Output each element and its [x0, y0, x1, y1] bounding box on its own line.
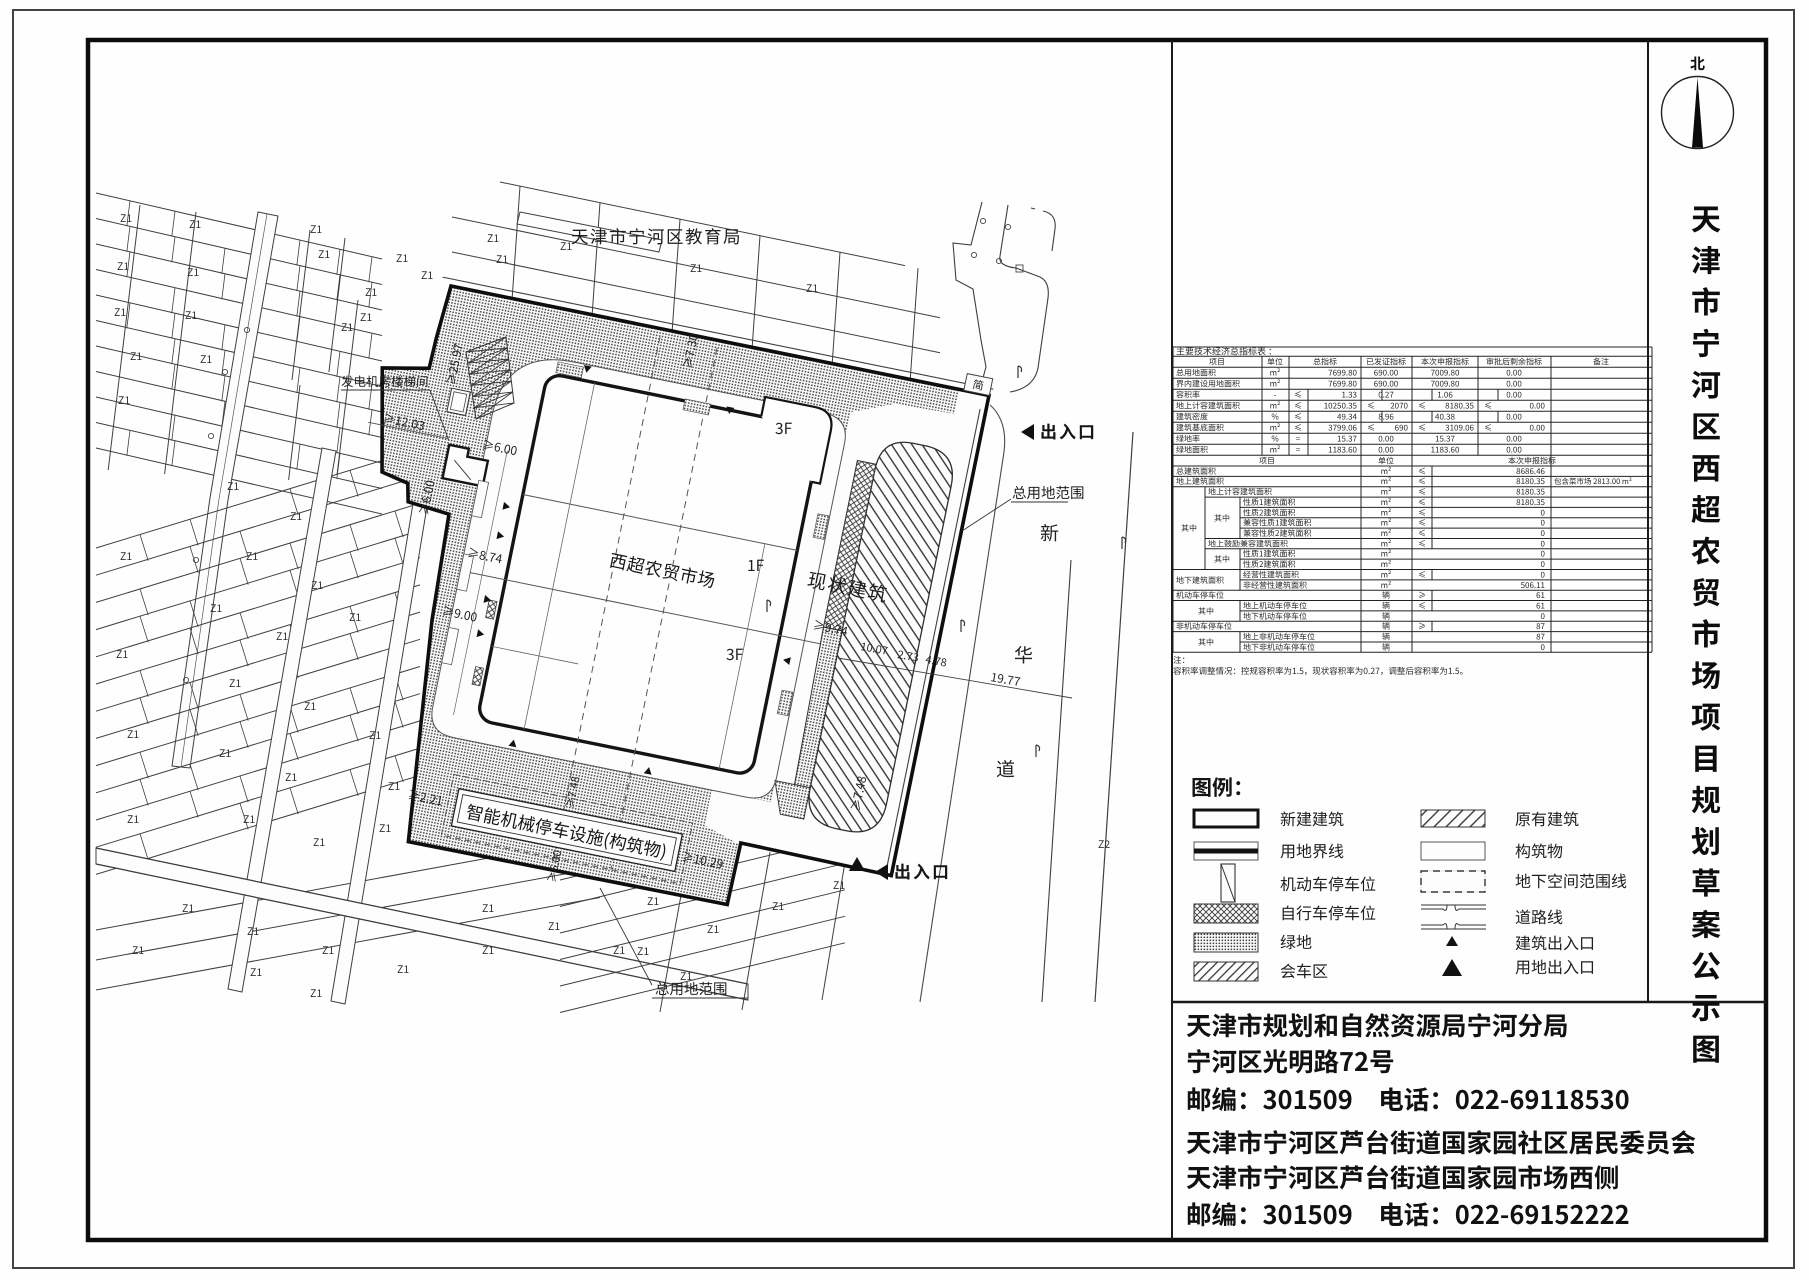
svg-text:用地出入口: 用地出入口: [1515, 954, 1595, 978]
svg-text:其中: 其中: [1214, 554, 1230, 565]
svg-text:0.00: 0.00: [1529, 423, 1545, 434]
svg-text:绿地: 绿地: [1280, 929, 1312, 953]
svg-text:界内建设用地面积: 界内建设用地面积: [1176, 379, 1240, 390]
svg-text:Z1: Z1: [560, 239, 572, 254]
svg-text:Z1: Z1: [349, 610, 361, 625]
svg-text:-: -: [1274, 390, 1277, 401]
svg-text:≤: ≤: [1484, 423, 1492, 434]
svg-text:≤: ≤: [1294, 423, 1302, 434]
svg-text:1.06: 1.06: [1437, 390, 1453, 401]
svg-text:Z1: Z1: [341, 320, 353, 335]
svg-text:1183.60: 1183.60: [1328, 445, 1357, 456]
svg-text:7699.80: 7699.80: [1328, 368, 1357, 379]
svg-text:Z1: Z1: [127, 812, 139, 827]
svg-text:3F: 3F: [726, 643, 744, 665]
svg-text:出入口: 出入口: [894, 858, 951, 883]
svg-text:建筑密度: 建筑密度: [1176, 412, 1208, 423]
svg-text:邮编：301509 电话：022-69152222: 邮编：301509 电话：022-69152222: [1186, 1195, 1630, 1232]
svg-text:0: 0: [1541, 569, 1546, 580]
svg-text:Z1: Z1: [322, 943, 334, 958]
svg-text:Z1: Z1: [310, 222, 322, 237]
svg-text:Z1: Z1: [187, 265, 199, 280]
svg-text:Z1: Z1: [285, 770, 297, 785]
svg-text:≤: ≤: [1418, 497, 1426, 508]
svg-text:辆: 辆: [1382, 600, 1390, 611]
svg-text:地下机动车停车位: 地下机动车停车位: [1243, 611, 1307, 622]
svg-text:m²: m²: [1381, 559, 1392, 570]
svg-text:图: 图: [1691, 1025, 1721, 1069]
svg-text:Z1: Z1: [772, 899, 784, 914]
svg-text:690: 690: [1395, 423, 1409, 434]
svg-text:天津市宁河区芦台街道国家园社区居民委员会: 天津市宁河区芦台街道国家园社区居民委员会: [1186, 1123, 1696, 1160]
svg-text:示: 示: [1691, 984, 1721, 1028]
svg-text:地上机动车停车位: 地上机动车停车位: [1243, 600, 1307, 611]
svg-text:市: 市: [1691, 278, 1721, 322]
svg-text:单位: 单位: [1267, 357, 1283, 368]
svg-text:m²: m²: [1270, 368, 1281, 379]
svg-text:Z1: Z1: [120, 549, 132, 564]
svg-text:地下建筑面积: 地下建筑面积: [1176, 575, 1224, 586]
svg-text:Z1: Z1: [365, 285, 377, 300]
svg-text:0.00: 0.00: [1506, 390, 1522, 401]
svg-text:0: 0: [1541, 642, 1546, 653]
svg-text:其中: 其中: [1214, 513, 1230, 524]
svg-text:Z1: Z1: [290, 509, 302, 524]
svg-text:机动车停车位: 机动车停车位: [1176, 590, 1224, 601]
svg-text:总用地范围: 总用地范围: [1012, 482, 1085, 503]
svg-text:超: 超: [1691, 486, 1721, 530]
svg-text:%: %: [1271, 434, 1279, 445]
svg-text:0.00: 0.00: [1506, 368, 1522, 379]
svg-text:1F: 1F: [747, 554, 765, 576]
svg-text:区: 区: [1691, 403, 1721, 447]
svg-text:Z1: Z1: [379, 821, 391, 836]
svg-text:原有建筑: 原有建筑: [1515, 806, 1579, 830]
svg-text:农: 农: [1691, 527, 1721, 571]
svg-text:Z1: Z1: [276, 629, 288, 644]
svg-text:天津市宁河区芦台街道国家园市场西侧: 天津市宁河区芦台街道国家园市场西侧: [1186, 1158, 1620, 1195]
svg-text:Z1: Z1: [247, 924, 259, 939]
svg-text:包含菜市场 2813.00 m²: 包含菜市场 2813.00 m²: [1554, 476, 1632, 487]
svg-text:天: 天: [1691, 195, 1721, 239]
svg-text:会车区: 会车区: [1280, 958, 1328, 982]
svg-text:1183.60: 1183.60: [1431, 445, 1460, 456]
svg-text:=: =: [1296, 445, 1301, 456]
svg-text:1.33: 1.33: [1341, 390, 1357, 401]
svg-text:性质1建筑面积: 性质1建筑面积: [1243, 497, 1295, 508]
svg-text:宁河区光明路72号: 宁河区光明路72号: [1186, 1042, 1395, 1079]
svg-text:690.00: 690.00: [1374, 379, 1399, 390]
svg-text:8180.35: 8180.35: [1516, 497, 1545, 508]
svg-text:其中: 其中: [1198, 637, 1214, 648]
svg-text:≤: ≤: [1484, 401, 1492, 412]
svg-text:40.38: 40.38: [1435, 412, 1456, 423]
svg-text:Z1: Z1: [117, 259, 129, 274]
svg-text:%: %: [1271, 412, 1279, 423]
svg-text:Z1: Z1: [397, 962, 409, 977]
svg-text:≤: ≤: [1418, 476, 1426, 487]
svg-text:87: 87: [1536, 632, 1545, 643]
svg-text:主要技术经济总指标表 ：: 主要技术经济总指标表 ：: [1176, 344, 1277, 357]
svg-text:≤: ≤: [1367, 423, 1375, 434]
svg-text:0: 0: [1541, 518, 1546, 529]
svg-text:Z1: Z1: [118, 393, 130, 408]
svg-text:天津市规划和自然资源局宁河分局: 天津市规划和自然资源局宁河分局: [1186, 1006, 1569, 1043]
svg-text:Z1: Z1: [388, 779, 400, 794]
svg-text:已发证指标: 已发证指标: [1366, 357, 1406, 368]
svg-text:0.00: 0.00: [1506, 434, 1522, 445]
svg-text:其中: 其中: [1198, 606, 1214, 617]
svg-text:Z1: Z1: [114, 305, 126, 320]
svg-text:地上计容建筑面积: 地上计容建筑面积: [1176, 401, 1240, 412]
svg-text:0.00: 0.00: [1506, 412, 1522, 423]
svg-text:Z1: Z1: [200, 352, 212, 367]
svg-text:Z1: Z1: [116, 647, 128, 662]
svg-text:≤: ≤: [1294, 412, 1302, 423]
svg-text:贸: 贸: [1691, 569, 1721, 613]
svg-text:0.00: 0.00: [1378, 445, 1394, 456]
svg-text:经营性建筑面积: 经营性建筑面积: [1243, 569, 1299, 580]
svg-text:Z1: Z1: [189, 217, 201, 232]
svg-text:建筑基底面积: 建筑基底面积: [1176, 423, 1224, 434]
svg-text:Z1: Z1: [219, 746, 231, 761]
svg-text:目: 目: [1691, 735, 1721, 779]
svg-text:地下非机动车停车位: 地下非机动车停车位: [1243, 642, 1315, 653]
svg-text:10250.35: 10250.35: [1324, 401, 1358, 412]
svg-text:辆: 辆: [1382, 632, 1390, 643]
svg-text:Z1: Z1: [250, 965, 262, 980]
svg-text:市: 市: [1691, 610, 1721, 654]
svg-text:总用地面积: 总用地面积: [1176, 368, 1216, 379]
svg-text:宁: 宁: [1691, 320, 1721, 364]
svg-text:61: 61: [1536, 600, 1545, 611]
svg-text:8180.35: 8180.35: [1516, 476, 1545, 487]
svg-text:Z1: Z1: [369, 728, 381, 743]
svg-text:≤: ≤: [1418, 423, 1426, 434]
svg-text:非机动车停车位: 非机动车停车位: [1176, 621, 1232, 632]
svg-text:m²: m²: [1381, 569, 1392, 580]
svg-text:河: 河: [1691, 361, 1721, 405]
svg-text:Z1: Z1: [487, 231, 499, 246]
svg-text:新建建筑: 新建建筑: [1280, 806, 1344, 830]
svg-text:草: 草: [1691, 859, 1721, 903]
svg-text:=: =: [1296, 434, 1301, 445]
svg-text:m²: m²: [1270, 423, 1281, 434]
svg-text:Z1: Z1: [120, 211, 132, 226]
svg-text:≤: ≤: [1294, 390, 1302, 401]
svg-text:绿地面积: 绿地面积: [1176, 445, 1208, 456]
svg-text:本次申报指标: 本次申报指标: [1508, 455, 1556, 466]
svg-text:兼容性质1建筑面积: 兼容性质1建筑面积: [1243, 518, 1311, 529]
svg-text:图例：: 图例：: [1191, 772, 1254, 802]
svg-text:Z1: Z1: [482, 943, 494, 958]
svg-text:Z2: Z2: [1098, 837, 1110, 852]
svg-text:≤: ≤: [1367, 401, 1375, 412]
svg-text:690.00: 690.00: [1374, 368, 1399, 379]
svg-text:≤: ≤: [1418, 538, 1426, 549]
svg-text:津: 津: [1691, 237, 1721, 281]
svg-text:用地界线: 用地界线: [1280, 838, 1344, 862]
svg-text:西: 西: [1691, 444, 1721, 488]
svg-text:≤: ≤: [1418, 569, 1426, 580]
svg-text:容积率调整情况：控规容积率为1.5，现状容积率为0.27，调: 容积率调整情况：控规容积率为1.5，现状容积率为0.27，调整后容积率为1.5。: [1173, 665, 1468, 677]
svg-text:Z1: Z1: [304, 699, 316, 714]
svg-text:自行车停车位: 自行车停车位: [1280, 900, 1376, 924]
svg-text:天津市宁河区教育局: 天津市宁河区教育局: [571, 224, 742, 249]
svg-text:出入口: 出入口: [1040, 418, 1097, 443]
svg-text:地上非机动车停车位: 地上非机动车停车位: [1243, 632, 1315, 643]
svg-text:19.77: 19.77: [989, 668, 1022, 690]
svg-text:审批后剩余指标: 审批后剩余指标: [1486, 357, 1542, 368]
svg-text:8180.35: 8180.35: [1445, 401, 1474, 412]
svg-text:49.34: 49.34: [1337, 412, 1358, 423]
svg-text:场: 场: [1691, 652, 1721, 696]
svg-text:Z1: Z1: [313, 835, 325, 850]
svg-text:Z1: Z1: [548, 919, 560, 934]
svg-text:3109.06: 3109.06: [1445, 423, 1474, 434]
svg-text:m²: m²: [1270, 401, 1281, 412]
svg-text:其中: 其中: [1181, 523, 1197, 534]
svg-text:8.96: 8.96: [1378, 412, 1394, 423]
svg-text:北: 北: [1690, 53, 1705, 74]
svg-text:Z1: Z1: [707, 922, 719, 937]
svg-text:道路线: 道路线: [1515, 904, 1563, 928]
svg-text:非经营性建筑面积: 非经营性建筑面积: [1243, 580, 1307, 591]
svg-text:性质2建筑面积: 性质2建筑面积: [1243, 559, 1295, 570]
svg-text:建筑出入口: 建筑出入口: [1515, 930, 1595, 954]
svg-text:道: 道: [996, 755, 1015, 782]
svg-text:总用地范围: 总用地范围: [655, 978, 728, 999]
svg-text:≤: ≤: [1418, 600, 1426, 611]
svg-text:Z1: Z1: [310, 986, 322, 1001]
svg-text:绿地率: 绿地率: [1176, 434, 1200, 445]
svg-text:总指标: 总指标: [1313, 357, 1337, 368]
svg-text:Z1: Z1: [130, 349, 142, 364]
svg-text:划: 划: [1691, 818, 1721, 862]
svg-text:3F: 3F: [775, 417, 793, 439]
svg-text:15.37: 15.37: [1337, 434, 1358, 445]
svg-text:华: 华: [1014, 641, 1033, 668]
svg-text:Z1: Z1: [127, 727, 139, 742]
svg-text:地下空间范围线: 地下空间范围线: [1515, 868, 1627, 892]
svg-text:3799.06: 3799.06: [1328, 423, 1357, 434]
svg-text:15.37: 15.37: [1435, 434, 1456, 445]
svg-text:规: 规: [1691, 776, 1721, 820]
svg-text:Z1: Z1: [185, 308, 197, 323]
svg-text:项目: 项目: [1209, 357, 1225, 368]
svg-text:Z1: Z1: [613, 943, 625, 958]
svg-text:Z1: Z1: [311, 578, 323, 593]
svg-text:Z1: Z1: [637, 944, 649, 959]
svg-text:0.00: 0.00: [1506, 445, 1522, 456]
svg-text:单位: 单位: [1378, 455, 1394, 466]
svg-text:7009.80: 7009.80: [1431, 379, 1460, 390]
svg-text:2070: 2070: [1390, 401, 1408, 412]
svg-text:容积率: 容积率: [1176, 390, 1200, 401]
svg-text:m²: m²: [1381, 476, 1392, 487]
svg-text:辆: 辆: [1382, 621, 1390, 632]
svg-text:项目: 项目: [1259, 455, 1275, 466]
svg-text:发电机房楼梯间: 发电机房楼梯间: [341, 371, 429, 390]
svg-text:Z1: Z1: [229, 676, 241, 691]
svg-text:兼容性质2建筑面积: 兼容性质2建筑面积: [1243, 528, 1311, 539]
svg-text:Z1: Z1: [421, 268, 433, 283]
svg-text:案: 案: [1691, 901, 1721, 945]
svg-text:地上建筑面积: 地上建筑面积: [1176, 476, 1224, 487]
svg-text:Z1: Z1: [132, 943, 144, 958]
svg-text:Z1: Z1: [210, 601, 222, 616]
svg-text:≤: ≤: [1418, 518, 1426, 529]
svg-text:新: 新: [1040, 519, 1059, 546]
svg-text:m²: m²: [1381, 497, 1392, 508]
svg-text:Z1: Z1: [806, 281, 818, 296]
svg-text:本次申报指标: 本次申报指标: [1421, 357, 1469, 368]
svg-text:7699.80: 7699.80: [1328, 379, 1357, 390]
svg-text:Z1: Z1: [647, 894, 659, 909]
svg-text:公: 公: [1691, 942, 1721, 986]
svg-text:Z1: Z1: [496, 252, 508, 267]
svg-text:m²: m²: [1270, 379, 1281, 390]
svg-text:Z1: Z1: [833, 878, 845, 893]
svg-text:0.00: 0.00: [1529, 401, 1545, 412]
svg-text:Z1: Z1: [396, 251, 408, 266]
svg-text:Z1: Z1: [246, 549, 258, 564]
svg-text:Z1: Z1: [243, 812, 255, 827]
svg-text:m²: m²: [1381, 528, 1392, 539]
svg-text:0.27: 0.27: [1378, 390, 1394, 401]
svg-text:Z1: Z1: [360, 310, 372, 325]
svg-text:备注: 备注: [1593, 357, 1609, 368]
svg-text:辆: 辆: [1382, 642, 1390, 653]
svg-text:m²: m²: [1381, 518, 1392, 529]
svg-text:Z1: Z1: [227, 479, 239, 494]
svg-text:邮编：301509 电话：022-69118530: 邮编：301509 电话：022-69118530: [1186, 1080, 1630, 1117]
svg-text:项: 项: [1691, 693, 1721, 737]
svg-text:≤: ≤: [1418, 401, 1426, 412]
svg-text:m²: m²: [1270, 445, 1281, 456]
svg-text:Z1: Z1: [318, 247, 330, 262]
svg-text:Z1: Z1: [482, 901, 494, 916]
svg-text:Z1: Z1: [182, 901, 194, 916]
svg-text:0: 0: [1541, 559, 1546, 570]
svg-text:机动车停车位: 机动车停车位: [1280, 871, 1376, 895]
svg-text:0.00: 0.00: [1506, 379, 1522, 390]
svg-text:≤: ≤: [1418, 528, 1426, 539]
svg-text:87: 87: [1536, 621, 1545, 632]
svg-text:构筑物: 构筑物: [1515, 838, 1563, 862]
svg-text:7009.80: 7009.80: [1431, 368, 1460, 379]
svg-text:Z1: Z1: [690, 261, 702, 276]
svg-text:0: 0: [1541, 528, 1546, 539]
svg-text:≥: ≥: [1418, 621, 1426, 632]
svg-text:0.00: 0.00: [1378, 434, 1394, 445]
svg-text:≤: ≤: [1294, 401, 1302, 412]
